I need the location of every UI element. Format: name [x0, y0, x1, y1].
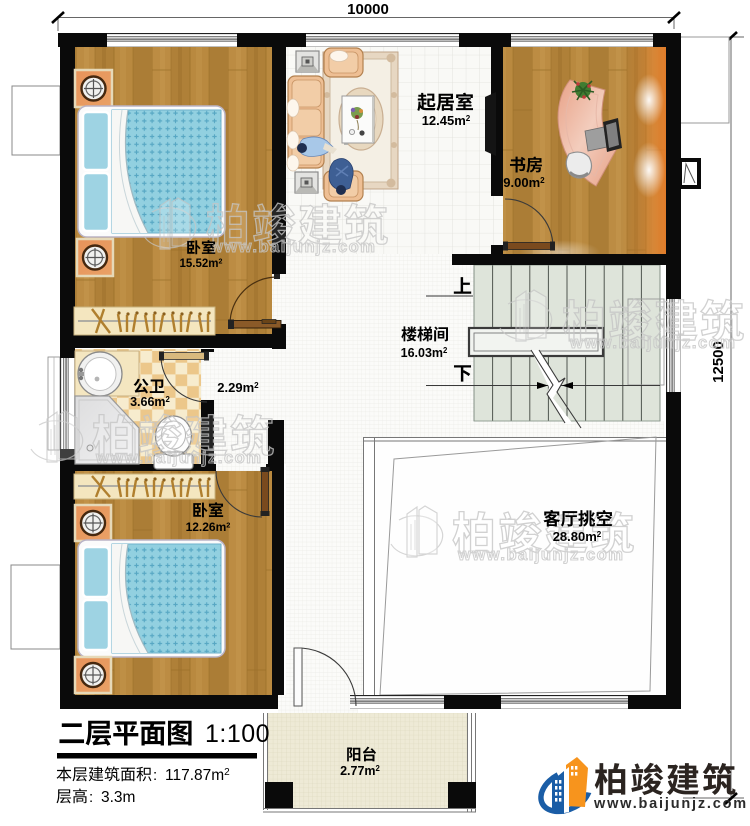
- svg-text:3.66m2: 3.66m2: [130, 395, 170, 409]
- svg-text:2.77m2: 2.77m2: [340, 764, 380, 778]
- svg-text:12.26m2: 12.26m2: [186, 520, 231, 534]
- svg-text:www.baijunjz.com: www.baijunjz.com: [457, 546, 624, 564]
- svg-text:10000: 10000: [347, 1, 389, 18]
- svg-text:1:100: 1:100: [205, 720, 270, 748]
- svg-text:www.baijunjz.com: www.baijunjz.com: [593, 796, 748, 812]
- svg-text:www.baijunjz.com: www.baijunjz.com: [209, 238, 376, 256]
- svg-text::: :: [89, 789, 93, 806]
- svg-text:2.29m2: 2.29m2: [217, 380, 259, 395]
- svg-text:www.baijunjz.com: www.baijunjz.com: [95, 449, 262, 467]
- svg-text:3.3m: 3.3m: [101, 789, 135, 806]
- svg-text:www.baijunjz.com: www.baijunjz.com: [569, 334, 736, 352]
- svg-text:28.80m2: 28.80m2: [553, 529, 602, 544]
- svg-text::: :: [153, 767, 157, 784]
- svg-text:15.52m2: 15.52m2: [180, 258, 223, 270]
- svg-text:9.00m2: 9.00m2: [503, 175, 545, 190]
- svg-text:12.45m2: 12.45m2: [422, 113, 471, 128]
- svg-text:117.87m2: 117.87m2: [165, 767, 230, 784]
- svg-text:16.03m2: 16.03m2: [401, 346, 448, 360]
